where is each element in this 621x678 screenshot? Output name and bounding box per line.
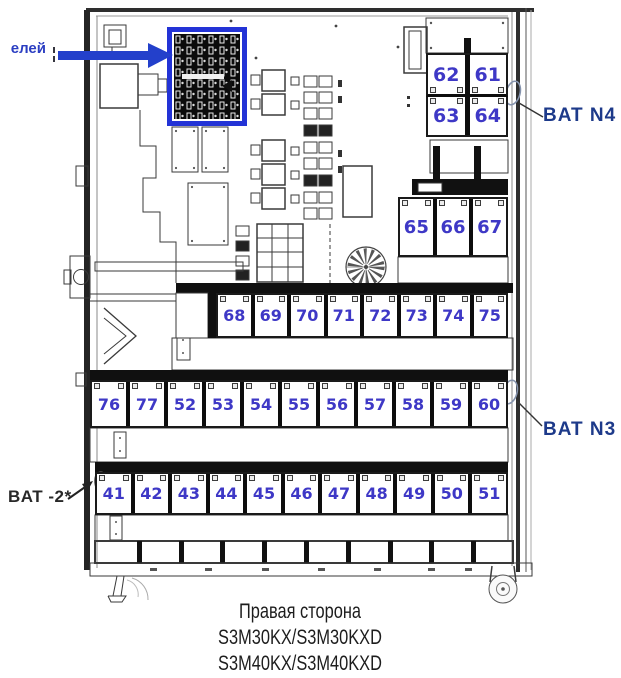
battery-number: 74: [442, 306, 464, 325]
battery-cell: 69: [251, 295, 288, 336]
battery-number: 63: [433, 105, 459, 127]
bat-minus2-label: BAT -2*: [8, 487, 72, 507]
caption-model-1: S3M30KX/S3M30KXD: [136, 625, 464, 651]
battery-number: 55: [288, 395, 310, 414]
fuse-arrowhead-icon: [148, 43, 173, 68]
battery-cell: 63: [428, 97, 465, 135]
battery-number: 56: [326, 395, 348, 414]
battery-block-65-67: 656667: [398, 197, 508, 257]
battery-number: 57: [364, 395, 386, 414]
top-frame-bar: [86, 8, 534, 12]
caption: Правая сторона S3M30KX/S3M30KXD S3M40KX/…: [90, 599, 510, 677]
battery-number: 59: [440, 395, 462, 414]
panel-above-mid: [430, 140, 508, 173]
battery-cell: 70: [287, 295, 324, 336]
caster-wheel: [489, 566, 517, 603]
battery-cell: 58: [392, 382, 430, 426]
battery-cell: 61: [465, 55, 507, 94]
battery-cell: 48: [356, 474, 394, 513]
battery-cell: 73: [397, 295, 434, 336]
battery-number: 71: [333, 306, 355, 325]
panel-row-gap-3: [95, 515, 508, 541]
battery-row-76-60: 7677525354555657585960: [90, 380, 508, 428]
fuse-arrow-icon: [58, 51, 150, 60]
battery-block-n4-top-row: 6261: [426, 53, 508, 97]
battery-cell: 71: [324, 295, 361, 336]
battery-number: 41: [103, 484, 125, 503]
battery-number: 64: [475, 105, 501, 127]
battery-cell: 44: [206, 474, 244, 513]
base-segments: [95, 541, 513, 563]
battery-number: 72: [369, 306, 391, 325]
battery-number: 62: [433, 64, 459, 86]
battery-cell: 49: [393, 474, 431, 513]
battery-cell: 60: [468, 382, 506, 426]
transformer: [343, 166, 372, 217]
battery-number: 48: [365, 484, 387, 503]
battery-number: 53: [212, 395, 234, 414]
battery-number: 50: [441, 484, 463, 503]
cover-plates: [172, 127, 228, 245]
panel-below-mid: [398, 257, 508, 283]
battery-number: 42: [140, 484, 162, 503]
battery-number: 69: [260, 306, 282, 325]
chevron-brace: [104, 308, 136, 364]
fuse-board-highlight: [167, 27, 247, 126]
battery-number: 49: [403, 484, 425, 503]
caption-side: Правая сторона: [136, 599, 464, 625]
terminal-strips: [304, 76, 342, 219]
battery-number: 45: [253, 484, 275, 503]
battery-cell: 75: [470, 295, 507, 336]
battery-number: 58: [402, 395, 424, 414]
bus-bar-upper: [176, 283, 513, 293]
battery-number: 67: [477, 217, 502, 238]
battery-cell: 55: [278, 382, 316, 426]
fan-icon: [346, 247, 386, 287]
bat2-arrowhead-icon: [82, 481, 93, 492]
battery-number: 54: [250, 395, 272, 414]
battery-cell: 41: [97, 474, 131, 513]
right-frame-bar: [516, 8, 520, 572]
battery-number: 46: [290, 484, 312, 503]
battery-number: 68: [223, 306, 245, 325]
battery-number: 52: [174, 395, 196, 414]
battery-cell: 59: [430, 382, 468, 426]
panel-row-gap-2: [90, 428, 508, 462]
battery-number: 60: [478, 395, 500, 414]
battery-cell: 74: [433, 295, 470, 336]
battery-cell: 68: [218, 295, 251, 336]
fuse-board-pattern: [174, 34, 240, 119]
handle-bracket: [404, 27, 427, 73]
battery-number: 51: [478, 484, 500, 503]
label-tick: [53, 47, 55, 53]
terminal-grid: [236, 224, 330, 284]
battery-cell: 76: [92, 382, 126, 426]
battery-cell: 54: [240, 382, 278, 426]
battery-cell: 50: [431, 474, 469, 513]
battery-number: 73: [406, 306, 428, 325]
label-tick: [53, 56, 55, 62]
battery-block-n4-bottom-row: 6364: [426, 97, 508, 137]
battery-number: 43: [178, 484, 200, 503]
bus-bar-middle: [90, 370, 508, 380]
battery-cell: 65: [400, 199, 433, 255]
battery-cell: 47: [318, 474, 356, 513]
battery-number: 77: [136, 395, 158, 414]
bus-bar-lower: [95, 462, 508, 472]
battery-cell: 57: [354, 382, 392, 426]
battery-number: 70: [296, 306, 318, 325]
battery-number: 75: [479, 306, 501, 325]
battery-row-68-75: 6869707172737475: [216, 293, 508, 338]
battery-number: 65: [404, 217, 429, 238]
battery-cell: 51: [468, 474, 506, 513]
battery-number: 47: [328, 484, 350, 503]
fuse-pointer-label: елей: [0, 40, 46, 57]
cabinet-lineart: [0, 0, 621, 678]
battery-cell: 72: [360, 295, 397, 336]
battery-cell: 56: [316, 382, 354, 426]
battery-row-41-51: 4142434445464748495051: [95, 472, 508, 515]
leader-line-n3: [517, 401, 542, 426]
battery-cell: 52: [164, 382, 202, 426]
battery-cell: 66: [433, 199, 470, 255]
battery-cell: 67: [469, 199, 506, 255]
battery-cell: 62: [428, 55, 465, 94]
battery-cell: 43: [168, 474, 206, 513]
battery-number: 61: [475, 64, 501, 86]
battery-cell: 42: [131, 474, 169, 513]
battery-number: 44: [215, 484, 237, 503]
battery-cell: 64: [465, 97, 507, 135]
stepped-panel-edge: [140, 110, 176, 283]
battery-cell: 46: [281, 474, 319, 513]
contactors: [262, 70, 285, 209]
battery-cell: 45: [243, 474, 281, 513]
panel-row-gap-1: [172, 338, 513, 370]
battery-cell: 53: [202, 382, 240, 426]
battery-number: 66: [440, 217, 465, 238]
bat-n3-label: BAT N3: [543, 419, 616, 441]
caption-model-2: S3M40KX/S3M40KXD: [136, 651, 464, 677]
battery-cell: 77: [126, 382, 164, 426]
bat-n4-label: BAT N4: [543, 105, 616, 127]
battery-number: 76: [98, 395, 120, 414]
battery-cabinet-diagram: елей 6261 6364 656667 6869707172737475 7…: [0, 0, 621, 678]
